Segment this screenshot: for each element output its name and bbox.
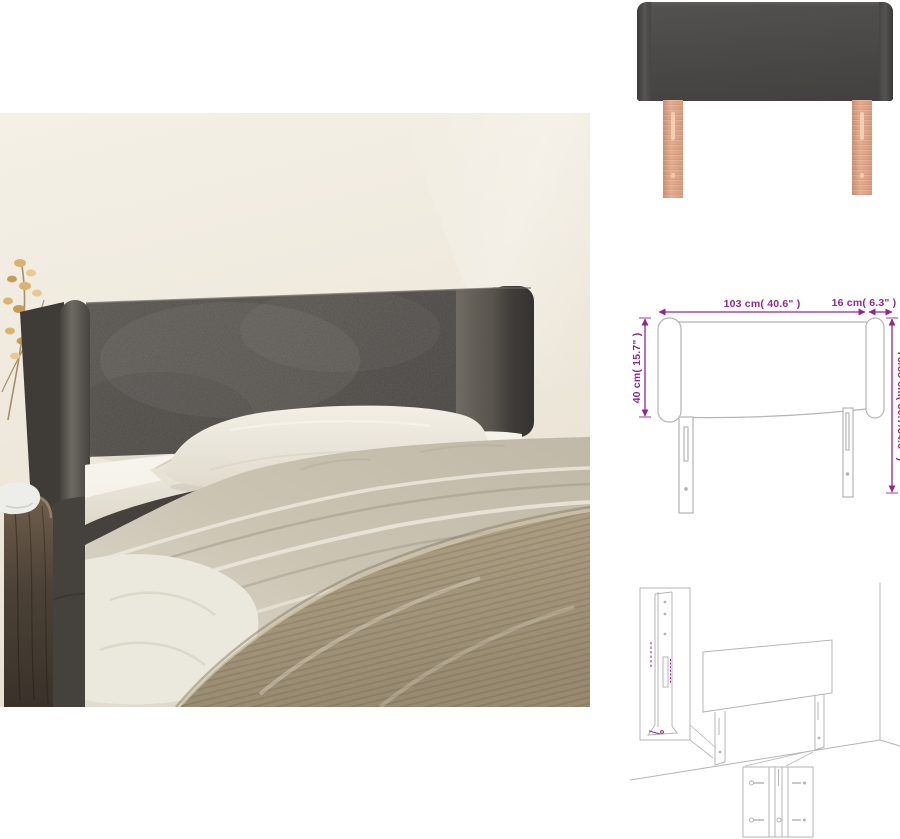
headboard-outline	[658, 318, 884, 513]
left-height-dimension-label: 40 cm( 15.7" )	[631, 333, 643, 404]
assembly-right-leg	[815, 694, 824, 750]
width-dimension-label: 103 cm( 40.6" )	[724, 298, 801, 310]
right-height-dimension-label: 78/88 cm( 30.7/34.6" )	[895, 351, 900, 461]
wood-leg-right	[852, 100, 872, 195]
diagram-legs	[679, 408, 853, 513]
assembly-headboard	[703, 640, 832, 765]
leg-slot	[860, 112, 864, 140]
assembly-drawing	[620, 553, 900, 839]
assembly-left-leg	[715, 711, 725, 765]
leg-notch	[860, 173, 864, 178]
callout-connectors	[690, 725, 813, 766]
headboard-front	[637, 2, 893, 101]
leg-slot	[671, 112, 675, 140]
wing-dimension-label: 16 cm( 6.3" )	[832, 297, 897, 309]
wood-leg-left	[663, 100, 683, 198]
headboard-product-image	[620, 0, 900, 230]
product-collage: 103 cm( 40.6" ) 16 cm( 6.3" ) 40 cm( 15.…	[0, 0, 900, 839]
leg-notch	[671, 173, 675, 178]
lifestyle-photo	[0, 113, 590, 707]
left-roll-edge	[637, 2, 651, 101]
screw-detail-callout	[743, 767, 813, 837]
right-roll-edge	[879, 2, 893, 101]
nightstand	[0, 482, 53, 707]
headboard-right-wing	[490, 286, 534, 437]
dimension-diagram: 103 cm( 40.6" ) 16 cm( 6.3" ) 40 cm( 15.…	[628, 278, 900, 540]
leg-detail-callout	[640, 588, 690, 740]
